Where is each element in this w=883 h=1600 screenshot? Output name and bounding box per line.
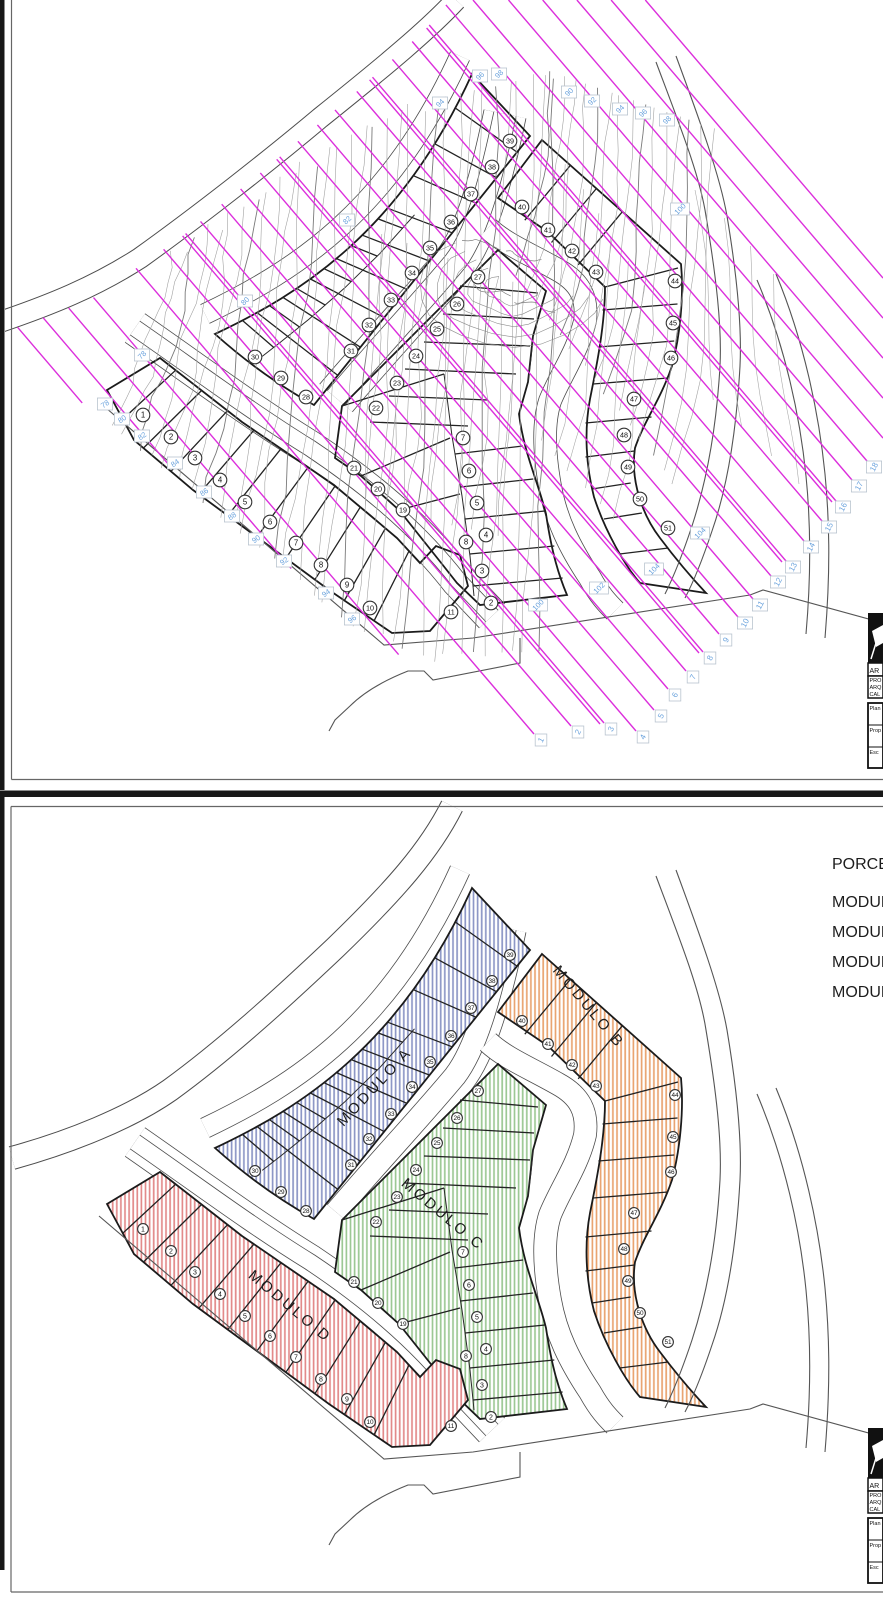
svg-text:37: 37 bbox=[467, 189, 475, 198]
svg-text:38: 38 bbox=[488, 978, 496, 985]
svg-text:26: 26 bbox=[453, 299, 461, 308]
svg-text:10: 10 bbox=[366, 1419, 374, 1426]
svg-text:22: 22 bbox=[372, 1219, 380, 1226]
svg-text:41: 41 bbox=[544, 1041, 552, 1048]
svg-text:MODULO B: MODULO B bbox=[832, 924, 883, 941]
svg-text:4: 4 bbox=[218, 1291, 222, 1298]
svg-text:Esc: Esc bbox=[870, 1565, 879, 1571]
svg-text:19: 19 bbox=[399, 1321, 407, 1328]
svg-text:29: 29 bbox=[277, 373, 285, 382]
svg-text:41: 41 bbox=[544, 225, 552, 234]
svg-text:6: 6 bbox=[268, 1333, 272, 1340]
svg-text:7: 7 bbox=[461, 434, 465, 443]
svg-text:MODULO A: MODULO A bbox=[832, 894, 883, 911]
svg-text:AR: AR bbox=[870, 668, 880, 675]
svg-text:3: 3 bbox=[193, 454, 197, 463]
svg-text:42: 42 bbox=[568, 246, 576, 255]
svg-text:47: 47 bbox=[630, 394, 638, 403]
svg-text:Prop: Prop bbox=[870, 1543, 882, 1549]
svg-text:31: 31 bbox=[347, 1162, 355, 1169]
svg-text:11: 11 bbox=[448, 1423, 455, 1430]
svg-text:42: 42 bbox=[568, 1062, 576, 1069]
svg-text:3: 3 bbox=[480, 1382, 484, 1389]
svg-text:49: 49 bbox=[624, 462, 632, 471]
svg-text:21: 21 bbox=[350, 463, 358, 472]
svg-text:45: 45 bbox=[669, 318, 677, 327]
svg-text:6: 6 bbox=[467, 1282, 471, 1289]
svg-text:8: 8 bbox=[464, 538, 468, 547]
svg-text:25: 25 bbox=[433, 1140, 441, 1147]
svg-text:7: 7 bbox=[461, 1249, 465, 1256]
svg-text:MODULO D: MODULO D bbox=[832, 984, 883, 1001]
svg-text:1: 1 bbox=[141, 411, 145, 420]
svg-text:Plan: Plan bbox=[870, 1521, 881, 1527]
svg-text:6: 6 bbox=[467, 467, 471, 476]
svg-text:47: 47 bbox=[630, 1210, 638, 1217]
svg-text:28: 28 bbox=[302, 392, 310, 401]
svg-text:2: 2 bbox=[169, 433, 173, 442]
svg-text:40: 40 bbox=[518, 1018, 526, 1025]
svg-text:27: 27 bbox=[474, 1088, 482, 1095]
svg-text:7: 7 bbox=[294, 539, 298, 548]
svg-text:PRO: PRO bbox=[870, 678, 883, 684]
svg-text:29: 29 bbox=[277, 1189, 285, 1196]
svg-text:19: 19 bbox=[399, 505, 407, 514]
svg-text:5: 5 bbox=[243, 1313, 247, 1320]
svg-text:51: 51 bbox=[664, 1339, 672, 1346]
svg-text:43: 43 bbox=[592, 1083, 600, 1090]
svg-text:24: 24 bbox=[412, 351, 420, 360]
svg-text:37: 37 bbox=[467, 1005, 475, 1012]
svg-text:40: 40 bbox=[518, 202, 526, 211]
svg-text:9: 9 bbox=[345, 581, 349, 590]
svg-text:2: 2 bbox=[169, 1248, 173, 1255]
svg-text:3: 3 bbox=[480, 567, 484, 576]
svg-text:21: 21 bbox=[350, 1279, 358, 1286]
svg-text:50: 50 bbox=[636, 1310, 644, 1317]
svg-text:1: 1 bbox=[141, 1226, 145, 1233]
svg-text:36: 36 bbox=[447, 217, 455, 226]
svg-text:CAL: CAL bbox=[870, 1507, 881, 1513]
svg-text:51: 51 bbox=[664, 523, 672, 532]
svg-text:PRO: PRO bbox=[870, 1493, 883, 1499]
svg-text:AR: AR bbox=[870, 1483, 880, 1490]
svg-text:20: 20 bbox=[374, 1300, 382, 1307]
svg-text:22: 22 bbox=[372, 403, 380, 412]
svg-text:24: 24 bbox=[412, 1167, 420, 1174]
svg-text:46: 46 bbox=[667, 353, 675, 362]
svg-text:8: 8 bbox=[319, 561, 323, 570]
svg-text:44: 44 bbox=[671, 1092, 679, 1099]
svg-text:33: 33 bbox=[387, 1111, 395, 1118]
svg-text:49: 49 bbox=[624, 1278, 632, 1285]
svg-text:2: 2 bbox=[489, 1414, 493, 1421]
svg-text:32: 32 bbox=[365, 1136, 373, 1143]
svg-text:30: 30 bbox=[251, 1168, 259, 1175]
svg-text:11: 11 bbox=[447, 607, 454, 616]
svg-text:5: 5 bbox=[243, 498, 248, 507]
svg-text:ARQ: ARQ bbox=[870, 1500, 883, 1506]
svg-text:34: 34 bbox=[408, 268, 416, 277]
svg-text:32: 32 bbox=[365, 320, 373, 329]
svg-text:4: 4 bbox=[484, 1346, 488, 1353]
svg-text:ARQ: ARQ bbox=[870, 685, 883, 691]
svg-text:45: 45 bbox=[669, 1134, 677, 1141]
svg-text:46: 46 bbox=[667, 1169, 675, 1176]
svg-text:28: 28 bbox=[302, 1208, 310, 1215]
svg-text:8: 8 bbox=[319, 1376, 323, 1383]
svg-text:3: 3 bbox=[193, 1269, 197, 1276]
svg-text:Prop: Prop bbox=[870, 728, 882, 734]
svg-text:23: 23 bbox=[393, 1194, 401, 1201]
svg-text:23: 23 bbox=[393, 378, 401, 387]
svg-text:PORCENTAJE: PORCENTAJE bbox=[832, 856, 883, 873]
svg-text:10: 10 bbox=[366, 603, 374, 612]
svg-text:38: 38 bbox=[488, 162, 496, 171]
svg-text:31: 31 bbox=[347, 346, 355, 355]
svg-text:7: 7 bbox=[294, 1354, 298, 1361]
svg-text:Plan: Plan bbox=[870, 706, 881, 712]
svg-text:27: 27 bbox=[474, 272, 482, 281]
svg-text:5: 5 bbox=[475, 1314, 479, 1321]
svg-text:20: 20 bbox=[374, 484, 382, 493]
svg-text:CAL: CAL bbox=[870, 692, 881, 698]
svg-text:MODULO C: MODULO C bbox=[832, 954, 883, 971]
svg-text:30: 30 bbox=[251, 352, 259, 361]
svg-text:4: 4 bbox=[218, 476, 223, 485]
svg-text:2: 2 bbox=[489, 599, 493, 608]
svg-text:50: 50 bbox=[636, 494, 644, 503]
svg-text:33: 33 bbox=[387, 295, 395, 304]
svg-text:39: 39 bbox=[506, 136, 514, 145]
svg-text:Esc: Esc bbox=[870, 750, 879, 756]
svg-text:4: 4 bbox=[484, 531, 489, 540]
svg-text:26: 26 bbox=[453, 1115, 461, 1122]
svg-text:39: 39 bbox=[506, 952, 514, 959]
svg-text:36: 36 bbox=[447, 1033, 455, 1040]
svg-text:6: 6 bbox=[268, 518, 272, 527]
svg-text:25: 25 bbox=[433, 324, 441, 333]
svg-text:48: 48 bbox=[620, 1246, 628, 1253]
svg-text:5: 5 bbox=[475, 499, 480, 508]
svg-text:48: 48 bbox=[620, 430, 628, 439]
svg-text:8: 8 bbox=[464, 1353, 468, 1360]
svg-text:44: 44 bbox=[671, 276, 679, 285]
svg-text:9: 9 bbox=[345, 1396, 349, 1403]
svg-text:34: 34 bbox=[408, 1084, 416, 1091]
svg-text:35: 35 bbox=[426, 243, 434, 252]
svg-text:43: 43 bbox=[592, 267, 600, 276]
svg-text:35: 35 bbox=[426, 1059, 434, 1066]
